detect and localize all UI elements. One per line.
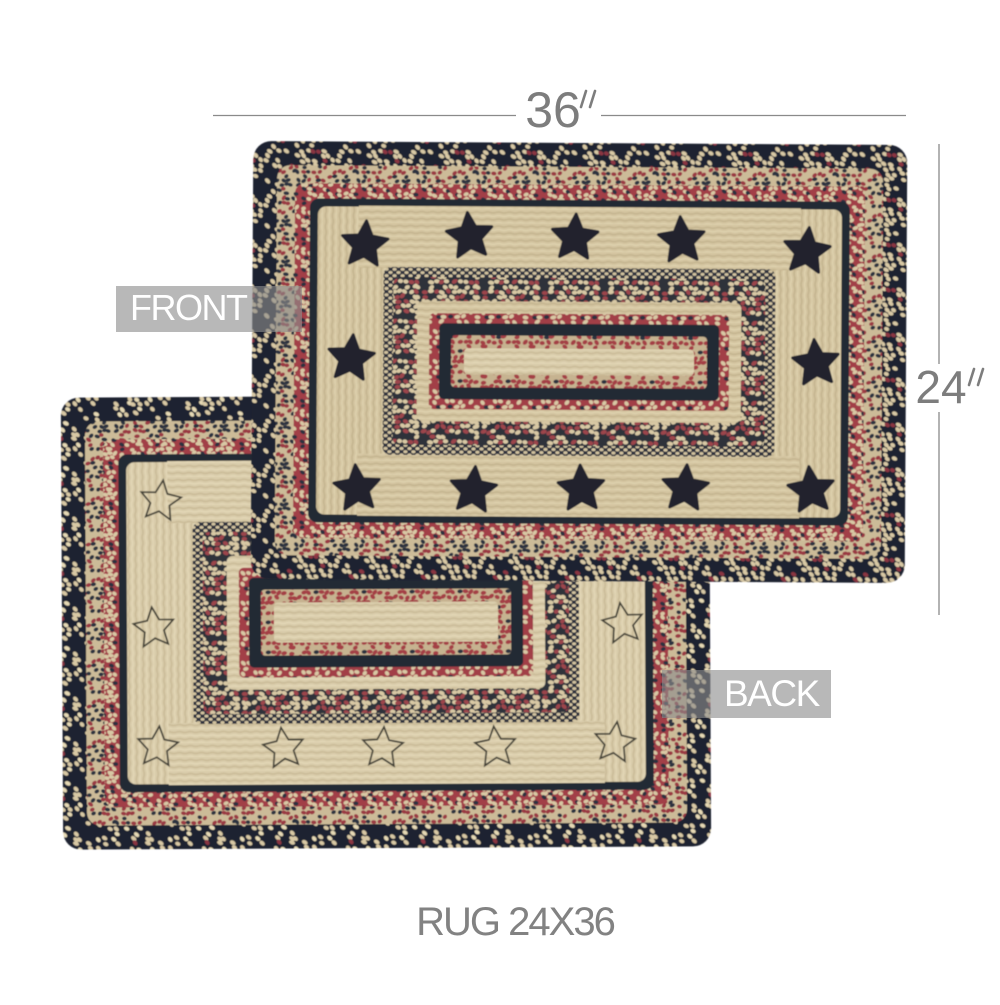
svg-text:36: 36 [525,82,581,138]
svg-text:RUG 24X36: RUG 24X36 [416,900,614,944]
svg-text:24: 24 [915,361,966,413]
svg-text:BACK: BACK [724,673,821,714]
svg-text:FRONT: FRONT [130,287,248,328]
